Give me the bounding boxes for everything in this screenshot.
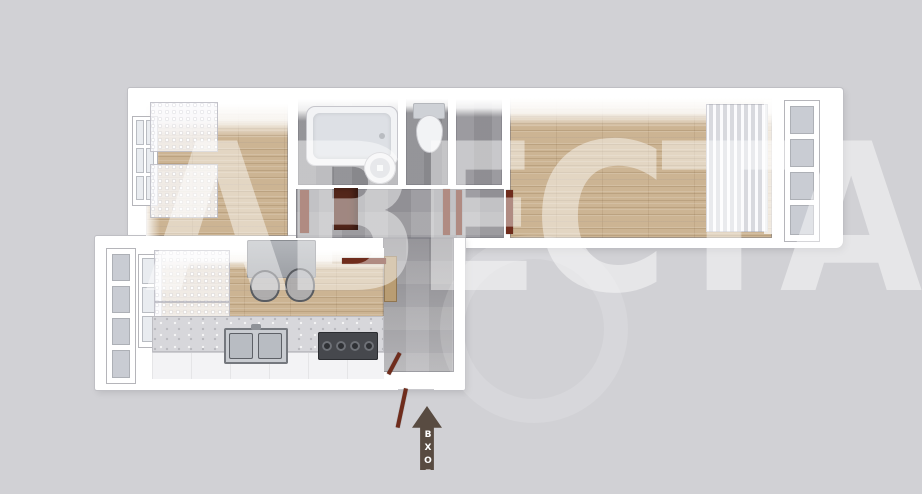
watermark-ring: [440, 235, 628, 423]
bathroom-door: [300, 190, 309, 233]
stove: [318, 332, 378, 360]
living-drapes: [706, 104, 768, 232]
kitchen-sink: [224, 328, 288, 364]
kitchen-faucet: [251, 324, 261, 330]
balcony-right-window: [784, 100, 820, 242]
hallway-cabinet: [334, 188, 358, 230]
storage-back-wall: [456, 97, 502, 117]
floor-plan-render: ВХОД АВЕСТА: [0, 0, 922, 494]
hallway-floor: [296, 189, 504, 238]
entrance-arrow: ВХОД: [412, 406, 442, 470]
wc-door: [443, 189, 450, 235]
entrance-door-leaf: [396, 388, 408, 428]
living-door: [506, 190, 513, 234]
kitchen-chair: [250, 270, 280, 302]
kitchen-chair: [285, 268, 315, 302]
bathroom-sink: [364, 152, 396, 184]
balcony-left-window: [106, 248, 136, 384]
kitchen-door: [342, 258, 386, 264]
bedroom-curtain-bottom: [150, 164, 218, 218]
bathtub-drain: [379, 133, 385, 139]
living-sheer-curtain: [764, 100, 772, 234]
storage-door: [456, 190, 462, 235]
bedroom-curtain-top: [150, 102, 218, 152]
entrance-arrow-label: ВХОД: [421, 430, 433, 482]
kitchen-curtain-top: [154, 250, 230, 302]
